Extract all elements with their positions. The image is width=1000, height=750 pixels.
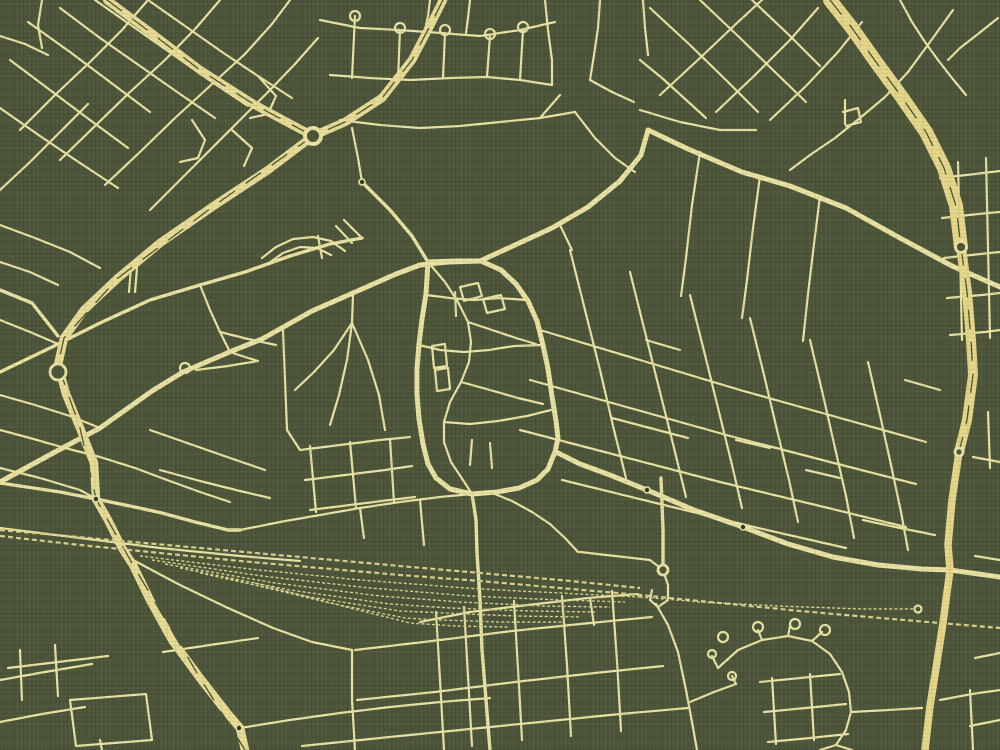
city-map-poster: [0, 0, 1000, 750]
map-canvas: [0, 0, 1000, 750]
linen-texture-coarse: [0, 0, 1000, 750]
